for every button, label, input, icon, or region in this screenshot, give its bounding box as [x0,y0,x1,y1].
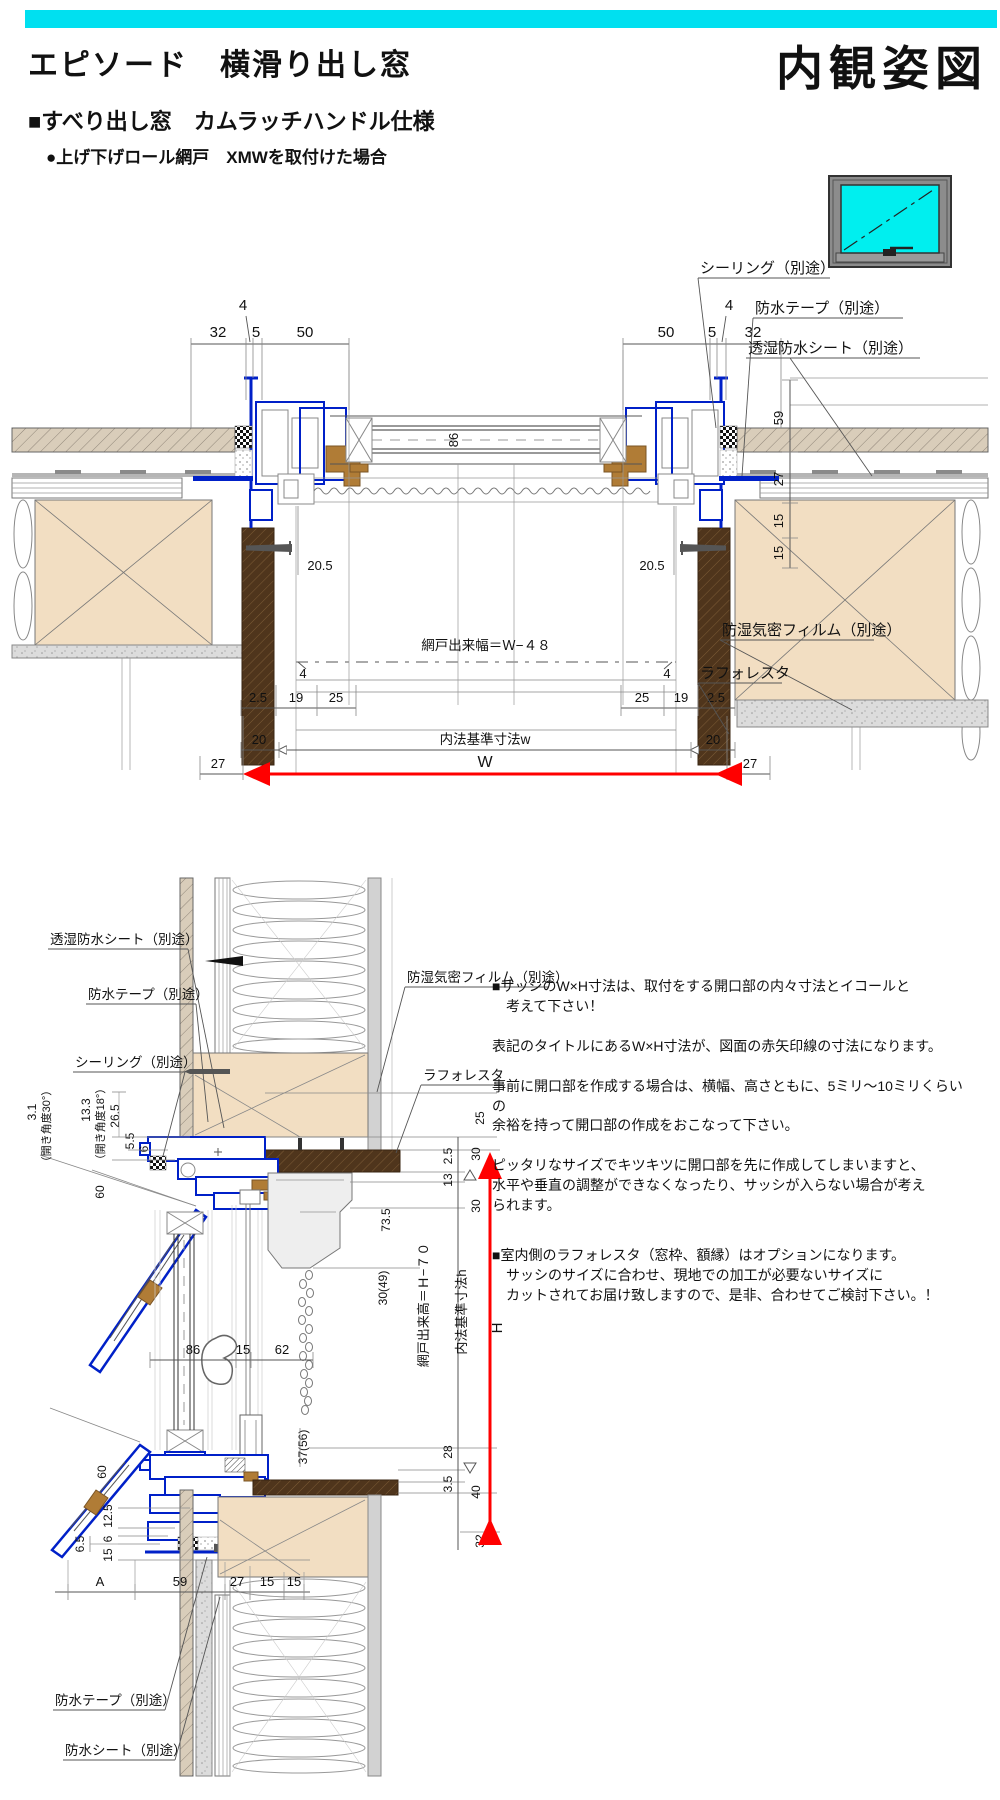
notes-block: ■サッシのW×H寸法は、取付をする開口部の内々寸法とイコールと 考えて下さい！ … [492,977,972,1326]
laforesta-jamb-left [242,528,274,765]
frame-left [193,378,360,528]
dim-5-right: 5 [708,324,716,341]
dim-4-left: 4 [239,297,247,314]
dim-20-l: 20 [252,732,266,747]
dim-25b: 2.5 [441,1147,455,1164]
operator-chain [299,1271,314,1415]
vertical-section-drawing: 60 [0,860,560,1800]
dim-3049: 30(49) [376,1271,390,1306]
dim-4-right: 4 [725,297,733,314]
dim-19-l: 19 [289,690,303,705]
spec-subtitle: ■すべり出し窓 カムラッチハンドル仕様 [28,104,435,136]
view-title: 内観姿図 [748,30,988,99]
base-height-label: 内法基準寸法h [454,1269,469,1354]
sealing-left [235,426,252,448]
callout-sheet-b: 透湿防水シート（別途） [50,931,199,947]
dim-13: 13 [441,1173,455,1187]
dim-3756: 37(56) [296,1430,310,1465]
dim-15a: 15 [771,514,786,528]
dim-205-right: 20.5 [639,558,664,573]
dim-angle30: （開き角度30°） [39,1085,53,1168]
dim-32-left: 32 [210,324,227,341]
dim-62: 62 [275,1342,289,1357]
callout-sheet: 透湿防水シート（別途） [748,340,913,357]
dim-265: 26.5 [108,1104,122,1128]
dim-20-r: 20 [706,732,720,747]
dim-40: 40 [469,1485,483,1499]
dim-15b: 15 [771,546,786,560]
screen-dims: 20.5 20.5 4 4 網戸出来幅＝Ｗ−４８ [298,506,674,681]
accent-bar [25,10,997,28]
callout-laforesta: ラフォレスタ [700,665,790,682]
page-title: エピソード 横滑り出し窓 [28,40,412,84]
construction-lines [296,350,676,774]
dim-15d: 15 [287,1574,301,1589]
dim-25top: 25 [473,1111,487,1125]
dim-55: 5.5 [123,1132,137,1149]
dim-25-r: 25 [635,690,649,705]
screen-housing [268,1173,352,1268]
roll-screen [202,1173,352,1465]
dim-A: A [96,1574,105,1589]
dim-32-right: 32 [745,324,762,341]
dim-28: 28 [441,1445,455,1459]
dim-30a: 30 [469,1147,483,1161]
screen-width-label: 網戸出来幅＝Ｗ−４８ [421,638,550,653]
horizontal-section-drawing: 86 32 5 50 4 50 5 32 4 [0,250,1000,790]
dim-glass-depth: 86 [446,433,461,447]
dim-86: 86 [186,1342,200,1357]
dim-60-top: 60 [93,1185,107,1199]
open-sash-top: 60 [40,1155,206,1372]
dim-59: 59 [771,411,786,425]
note-paragraph-5: ■室内側のラフォレスタ（窓枠、額縁）はオプションになります。 サッシのサイズに合… [492,1246,972,1306]
callout-tape-bottom: 防水テープ（別途） [55,1692,176,1708]
screen-mesh [314,488,650,494]
dim-angle18: （開き角度18°） [93,1083,107,1166]
callout-sealing-b: シーリング（別途） [75,1054,197,1070]
dim-32b: 32 [473,1534,487,1548]
dim-205-left: 20.5 [307,558,332,573]
dim-27b: 27 [230,1574,244,1589]
dim-6-bottom: 6 [101,1535,115,1542]
open-sash-bottom: 60 [50,1408,150,1557]
laforesta-jamb-right [698,528,730,765]
inner-base-width-label: 内法基準寸法w [440,731,531,747]
note-paragraph-1: ■サッシのW×H寸法は、取付をする開口部の内々寸法とイコールと 考えて下さい！ [492,977,972,1017]
sealing-head [150,1156,166,1170]
dim-27-depth: 27 [771,472,786,486]
screen-assembly [278,474,694,504]
dim-125: 12.5 [101,1504,115,1528]
note-paragraph-4: ピッタリなサイズでキツキツに開口部を先に作成してしまいますと、 水平や垂直の調整… [492,1156,972,1216]
dim-27-r: 27 [743,756,757,771]
dim-15c: 15 [260,1574,274,1589]
dim-5-left: 5 [252,324,260,341]
dim-25b-l: 25 [329,690,343,705]
wall-upper [180,878,400,1172]
bottom-dims: 2.5 19 25 25 19 2.5 20 内法基準寸法w 20 27 W 2… [200,685,770,780]
dim-angle18-val: 13.3 [79,1098,93,1122]
dim-angle30-val: 3.1 [25,1103,39,1120]
dim-15-left: 15 [101,1548,115,1562]
dim-65: 6.5 [73,1535,87,1552]
dim-735: 73.5 [379,1208,393,1232]
glass-unit: 86 [330,416,642,472]
dim-19-r: 19 [674,690,688,705]
screen-height-label: 網戸出来高＝Ｈ−７０ [416,1243,431,1368]
dim-30b: 30 [469,1199,483,1213]
sealing-right [720,426,737,448]
dim-50-left: 50 [297,324,314,341]
note-paragraph-2: 表記のタイトルにあるW×H寸法が、図面の赤矢印線の寸法になります。 [492,1037,972,1057]
callout-tape: 防水テープ（別途） [755,300,889,317]
dim-35: 3.5 [441,1475,455,1492]
laforesta-sill-board [253,1480,398,1495]
dim-60-bottom: 60 [95,1465,109,1479]
dim-50-right: 50 [658,324,675,341]
callout-film: 防湿気密フィルム（別途） [722,622,901,639]
note-paragraph-3: 事前に開口部を作成する場合は、横幅、高さともに、5ミリ～10ミリくらいの 余裕を… [492,1077,972,1137]
dim-25-l: 2.5 [249,690,267,705]
dim-15mid: 15 [236,1342,250,1357]
W-label: W [477,754,493,771]
option-note: ●上げ下げロール網戸 XMWを取付けた場合 [46,143,387,168]
dim-27-l: 27 [211,756,225,771]
dim-6-top: 6 [137,1145,151,1152]
callout-sheet-bottom: 防水シート（別途） [65,1742,187,1758]
dim-59b: 59 [173,1574,187,1589]
callout-tape-top: 防水テープ（別途） [88,986,209,1002]
callout-sealing: シーリング（別途） [700,260,835,277]
